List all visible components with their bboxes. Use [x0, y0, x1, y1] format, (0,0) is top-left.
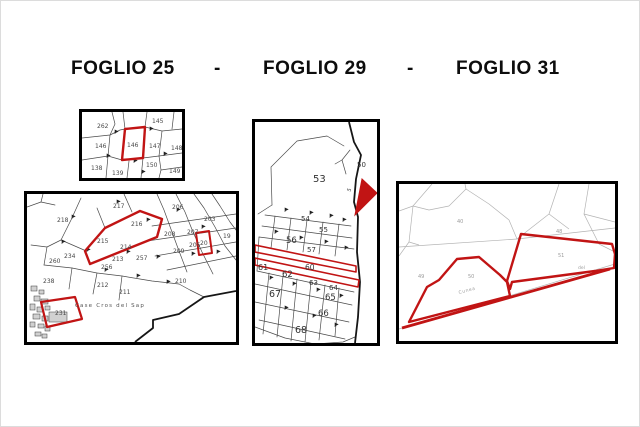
page-title-foglio-31: FOGLIO 31 [456, 58, 560, 80]
parcel-label: 212 [97, 282, 109, 289]
parcel-label: 215 [97, 238, 109, 245]
parcel-label: 256 [101, 264, 113, 271]
parcel-label: 207 [187, 229, 199, 236]
survey-marks [107, 127, 167, 174]
highlighted-strip-line [402, 269, 610, 328]
parcel-label: 234 [64, 253, 76, 260]
parcel-label: 65 [325, 293, 336, 303]
parcel-label: 64 [329, 284, 338, 292]
highlighted-triangle [355, 179, 377, 215]
parcel-label: 203 [204, 216, 216, 223]
map-drawing-foglio31: 40 48 49 50 51 del Cunea [399, 184, 615, 341]
parcel-label: 138 [91, 165, 103, 172]
parcel-label: 53 [313, 174, 326, 185]
parcel-label: 211 [119, 289, 131, 296]
parcel-label: 146 [127, 142, 139, 149]
parcel-label: 206 [172, 204, 184, 211]
parcel-label: 60 [305, 263, 315, 272]
title-dash-2: - [407, 58, 414, 80]
parcel-label: 231 [55, 310, 67, 317]
parcel-label: 54 [301, 215, 310, 223]
cadastral-sheet-page: FOGLIO 25 - FOGLIO 29 - FOGLIO 31 [0, 0, 640, 427]
parcel-label: 149 [169, 168, 181, 175]
place-name-label: Case Cros del Sap [75, 303, 145, 309]
map-panel-foglio25-inset: 262 145 146 146 147 148 138 139 150 149 [79, 109, 185, 181]
parcel-label: 262 [97, 123, 109, 130]
parcel-label: 62 [282, 270, 293, 280]
parcel-label: 213 [112, 256, 124, 263]
map-drawing-foglio25-inset: 262 145 146 146 147 148 138 139 150 149 [82, 112, 182, 178]
highlighted-parcel-outline [507, 234, 615, 289]
parcel-label: 257 [136, 255, 148, 262]
parcel-label: 218 [57, 217, 69, 224]
parcel-label: 55 [319, 226, 328, 234]
parcel-label: 68 [295, 325, 307, 336]
parcel-label: 48 [556, 229, 562, 235]
area-label: del [578, 265, 585, 271]
parcel-label: 61 [258, 263, 268, 272]
parcel-label: 67 [269, 289, 281, 300]
map-panel-foglio31: 40 48 49 50 51 del Cunea [396, 181, 618, 344]
parcel-label: 209 [173, 248, 185, 255]
parcel-label: 216 [131, 221, 143, 228]
parcel-label: 145 [152, 118, 164, 125]
map-drawing-foglio29: 53 50 54 55 56 57 60 61 62 63 64 65 66 6… [255, 122, 377, 343]
parcel-label: 40 [457, 219, 463, 225]
road-name-label: Cunea [458, 286, 476, 296]
parcel-lines [255, 136, 355, 343]
parcel-label: 260 [49, 258, 61, 265]
boundary-line [135, 291, 236, 342]
parcel-label: 147 [149, 143, 161, 150]
parcel-label: 205 [189, 242, 201, 249]
parcel-label: 148 [171, 145, 182, 152]
map-panel-foglio29: 53 50 54 55 56 57 60 61 62 63 64 65 66 6… [252, 119, 380, 346]
parcel-label: 214 [120, 244, 132, 251]
parcel-label: 5 [346, 187, 353, 192]
parcel-label: 20 [200, 240, 208, 247]
map-panel-foglio25-main: 218 217 216 215 234 260 214 213 257 256 … [24, 191, 239, 345]
parcel-label: 63 [309, 279, 318, 287]
parcel-label: 19 [223, 233, 231, 240]
parcel-label: 217 [113, 203, 125, 210]
parcel-label: 238 [43, 278, 55, 285]
parcel-label: 50 [357, 161, 366, 169]
parcel-lines [399, 184, 615, 329]
parcel-label: 50 [468, 274, 474, 280]
parcel-label: 49 [418, 274, 424, 280]
parcel-label: 51 [558, 253, 564, 259]
boundary-line [349, 122, 361, 343]
parcel-label: 56 [286, 236, 297, 246]
page-title-foglio-29: FOGLIO 29 [263, 58, 367, 80]
parcel-label: 208 [164, 231, 176, 238]
parcel-label: 150 [146, 162, 158, 169]
map-drawing-foglio25-main: 218 217 216 215 234 260 214 213 257 256 … [27, 194, 236, 342]
parcel-label: 210 [175, 278, 187, 285]
highlighted-parcels [402, 234, 615, 328]
page-title-foglio-25: FOGLIO 25 [71, 58, 175, 80]
title-dash-1: - [214, 58, 221, 80]
parcel-label: 66 [318, 309, 329, 319]
parcel-label: 139 [112, 170, 124, 177]
parcel-label: 146 [95, 143, 107, 150]
parcel-label: 57 [307, 246, 316, 254]
